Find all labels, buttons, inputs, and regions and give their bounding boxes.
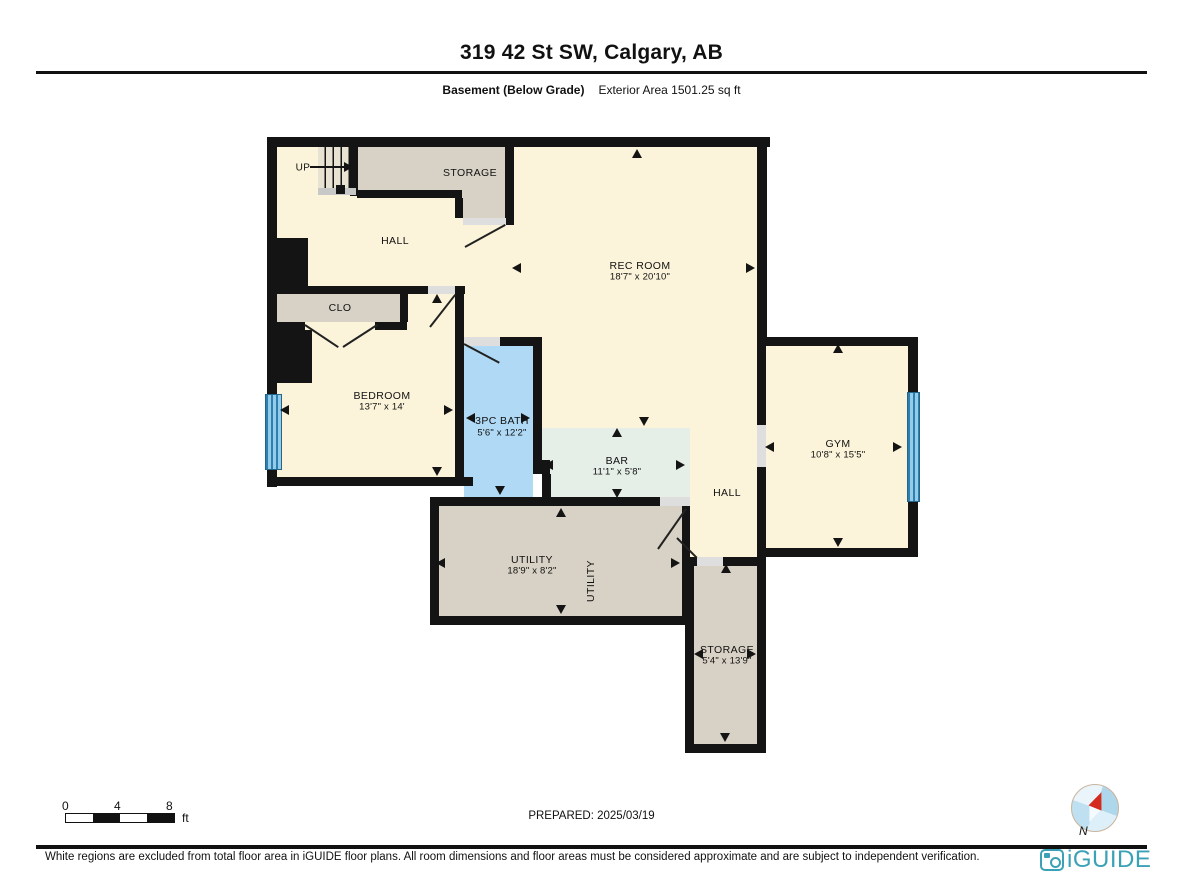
utility-floor xyxy=(439,506,682,616)
measure-arrow-icon xyxy=(444,405,453,415)
measure-arrow-icon xyxy=(612,489,622,498)
exterior-area: Exterior Area 1501.25 sq ft xyxy=(598,83,740,97)
wall xyxy=(430,616,690,625)
measure-arrow-icon xyxy=(436,558,445,568)
measure-arrow-icon xyxy=(721,564,731,573)
utility-door-opening xyxy=(660,497,690,506)
stairs-post xyxy=(336,185,345,194)
measure-arrow-icon xyxy=(544,460,553,470)
closet-label: CLO xyxy=(329,302,352,314)
wall xyxy=(685,557,694,753)
wall xyxy=(357,190,462,198)
measure-arrow-icon xyxy=(466,413,475,423)
compass-north-label: N xyxy=(1079,824,1088,838)
wall xyxy=(375,322,407,330)
wall xyxy=(267,330,312,383)
wall xyxy=(277,322,305,330)
bath-dims: 5'6" x 12'2" xyxy=(477,428,526,439)
measure-arrow-icon xyxy=(280,405,289,415)
storage-bottom-door-opening xyxy=(697,557,723,566)
gym-label: GYM xyxy=(825,438,850,450)
gym-dims: 10'8" x 15'5" xyxy=(811,450,866,461)
storage-top-door-opening xyxy=(463,218,506,225)
measure-arrow-icon xyxy=(612,428,622,437)
wall xyxy=(757,137,767,346)
rec-room-floor-mid xyxy=(464,286,757,337)
measure-arrow-icon xyxy=(676,460,685,470)
measure-arrow-icon xyxy=(556,605,566,614)
iguide-logo-icon xyxy=(1040,849,1064,871)
bedroom-dims: 13'7" x 14' xyxy=(359,402,405,413)
measure-arrow-icon xyxy=(893,442,902,452)
page-title: 319 42 St SW, Calgary, AB xyxy=(0,41,1183,65)
wall xyxy=(685,744,766,753)
bath-door-opening xyxy=(464,337,500,346)
stairs-arrow-icon xyxy=(344,162,353,172)
measure-arrow-icon xyxy=(671,558,680,568)
hall-right-label: HALL xyxy=(713,487,741,499)
wall xyxy=(533,337,542,460)
measure-arrow-icon xyxy=(639,417,649,426)
wall xyxy=(400,294,408,322)
measure-arrow-icon xyxy=(833,344,843,353)
wall xyxy=(267,477,473,486)
measure-arrow-icon xyxy=(746,263,755,273)
wall xyxy=(430,497,660,506)
stairs-direction-arrow xyxy=(310,166,346,168)
measure-arrow-icon xyxy=(720,733,730,742)
measure-arrow-icon xyxy=(833,538,843,547)
bedroom-door-opening xyxy=(428,286,455,294)
measure-arrow-icon xyxy=(495,486,505,495)
iguide-logo-text: iGUIDE xyxy=(1067,846,1151,874)
storage-top-label: STORAGE xyxy=(443,167,497,179)
bath-label: 3PC BATH xyxy=(475,415,529,427)
wall xyxy=(267,238,308,292)
wall xyxy=(455,198,463,218)
storage-bottom-dims: 5'4" x 13'9" xyxy=(702,656,751,667)
utility-dims: 18'9" x 8'2" xyxy=(507,566,556,577)
wall xyxy=(267,137,770,147)
stairs-up-label: UP xyxy=(296,163,311,174)
wall xyxy=(757,548,918,557)
iguide-logo-square xyxy=(1044,853,1050,858)
bedroom-label: BEDROOM xyxy=(353,390,410,402)
footer-divider xyxy=(36,845,1147,849)
floor-name: Basement (Below Grade) xyxy=(442,83,584,97)
storage-bottom-label: STORAGE xyxy=(700,644,754,656)
measure-arrow-icon xyxy=(432,294,442,303)
rec-room-dims: 18'7" x 20'10" xyxy=(610,272,670,283)
wall xyxy=(455,294,464,486)
gym-window xyxy=(907,392,920,502)
bar-dims: 11'1" x 5'8" xyxy=(593,467,642,478)
floor-subtitle: Basement (Below Grade)Exterior Area 1501… xyxy=(0,83,1183,97)
footer-disclaimer: White regions are excluded from total fl… xyxy=(45,851,980,863)
measure-arrow-icon xyxy=(512,263,521,273)
storage-top-floor-ext xyxy=(455,147,512,218)
rec-room-floor-lower xyxy=(542,337,757,428)
iguide-logo-circle xyxy=(1050,857,1061,868)
wall xyxy=(505,147,514,225)
rec-room-label: REC ROOM xyxy=(610,260,671,272)
utility-vertical-label: UTILITY xyxy=(585,560,597,602)
prepared-date: PREPARED: 2025/03/19 xyxy=(0,810,1183,822)
iguide-logo: iGUIDE xyxy=(1040,846,1151,874)
bar-label: BAR xyxy=(606,455,629,467)
utility-label: UTILITY xyxy=(511,554,553,566)
measure-arrow-icon xyxy=(765,442,774,452)
header-divider xyxy=(36,71,1147,74)
hall-top-label: HALL xyxy=(381,235,409,247)
measure-arrow-icon xyxy=(632,149,642,158)
measure-arrow-icon xyxy=(432,467,442,476)
measure-arrow-icon xyxy=(556,508,566,517)
wall xyxy=(757,557,766,753)
